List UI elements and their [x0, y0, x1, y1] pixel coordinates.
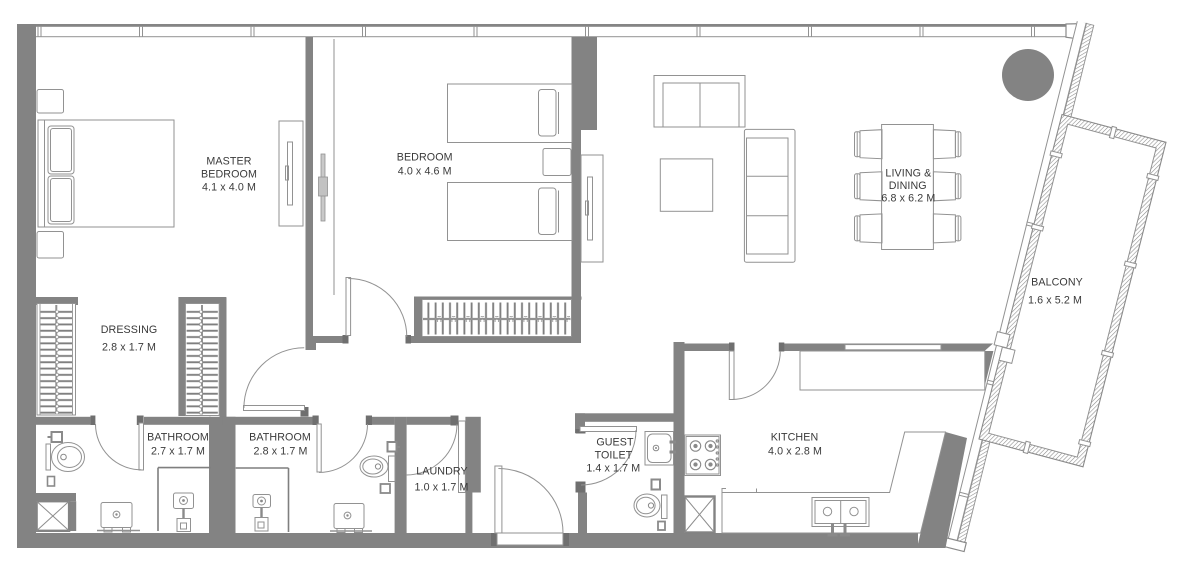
svg-text:BATHROOM: BATHROOM — [147, 432, 209, 444]
svg-text:TOILET: TOILET — [595, 450, 633, 462]
svg-text:KITCHEN: KITCHEN — [771, 432, 819, 444]
svg-text:BATHROOM: BATHROOM — [249, 432, 311, 444]
svg-text:6.8 x 6.2 M: 6.8 x 6.2 M — [881, 193, 935, 205]
svg-text:2.7 x 1.7 M: 2.7 x 1.7 M — [151, 446, 205, 458]
svg-text:2.8 x 1.7 M: 2.8 x 1.7 M — [254, 446, 308, 458]
svg-text:MASTER: MASTER — [206, 156, 251, 168]
svg-text:LIVING &: LIVING & — [885, 168, 931, 180]
svg-text:4.0 x 2.8 M: 4.0 x 2.8 M — [768, 446, 822, 458]
svg-text:BEDROOM: BEDROOM — [201, 169, 257, 181]
svg-text:2.8 x 1.7 M: 2.8 x 1.7 M — [102, 342, 156, 354]
svg-text:1.4 x 1.7 M: 1.4 x 1.7 M — [586, 463, 640, 475]
svg-text:1.6 x 5.2 M: 1.6 x 5.2 M — [1028, 295, 1082, 307]
svg-text:DINING: DINING — [889, 180, 927, 192]
svg-text:GUEST: GUEST — [596, 437, 634, 449]
svg-text:1.0 x 1.7 M: 1.0 x 1.7 M — [415, 482, 469, 494]
svg-text:4.0 x 4.6 M: 4.0 x 4.6 M — [398, 166, 452, 178]
svg-text:DRESSING: DRESSING — [101, 324, 158, 336]
svg-text:LAUNDRY: LAUNDRY — [416, 466, 468, 478]
svg-text:BEDROOM: BEDROOM — [397, 152, 453, 164]
svg-text:4.1 x 4.0 M: 4.1 x 4.0 M — [202, 182, 256, 194]
svg-text:BALCONY: BALCONY — [1031, 277, 1083, 289]
